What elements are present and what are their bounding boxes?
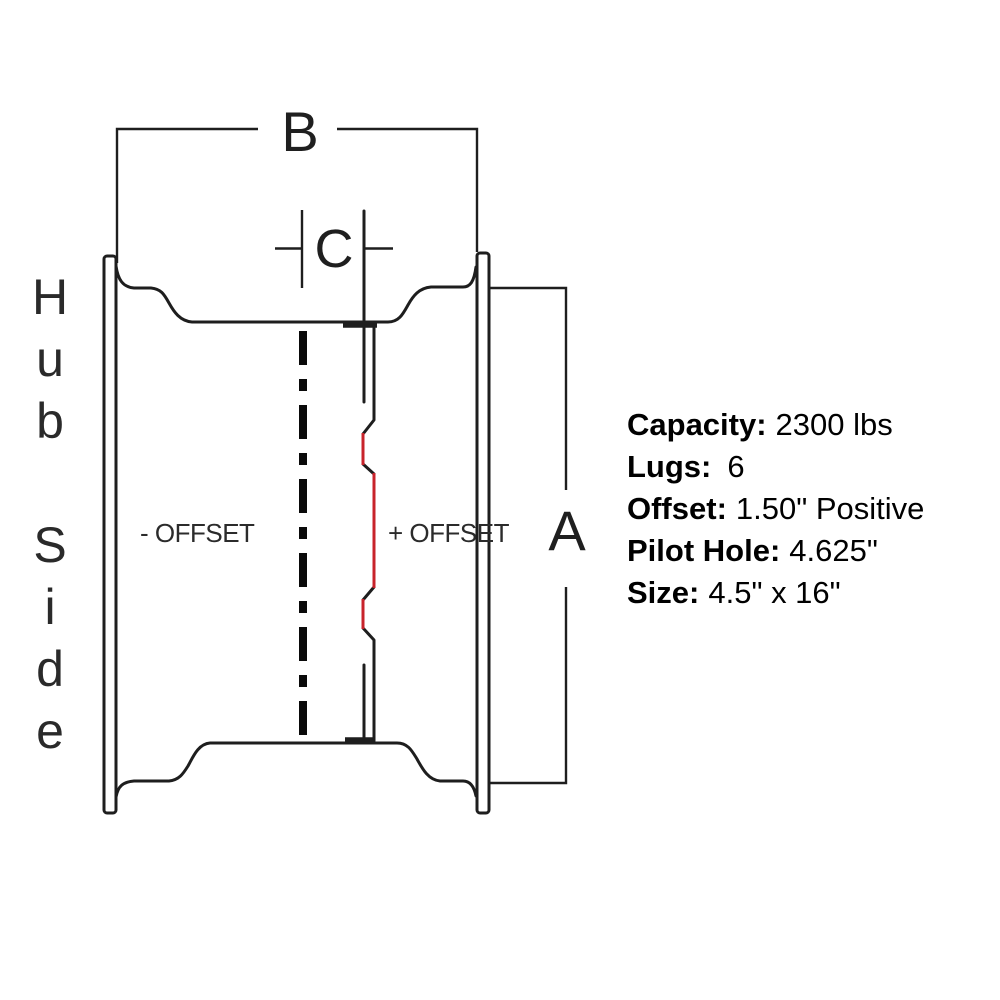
spec-value-size: 4.5" x 16"	[708, 575, 840, 610]
rim-top-inner-profile	[116, 266, 476, 322]
dim-b-label: B	[281, 100, 318, 163]
wheel-diagram-canvas: B C A Hub Side - OFFSET + OFFSET Capacit…	[0, 0, 1000, 1000]
spec-label-size: Size:	[627, 575, 699, 610]
hub-side-letter	[24, 452, 76, 514]
spec-label-lugs: Lugs:	[627, 449, 711, 484]
positive-offset-label: + OFFSET	[388, 518, 509, 549]
spec-row-offset: Offset:1.50" Positive	[627, 488, 924, 530]
hub-side-letter: i	[24, 576, 76, 638]
hub-side-letter: S	[24, 514, 76, 576]
rim-bottom-inner-profile	[116, 743, 476, 797]
spec-list: Capacity:2300 lbs Lugs:6 Offset:1.50" Po…	[627, 404, 924, 614]
hub-side-letter: H	[24, 266, 76, 328]
dim-c-label: C	[315, 219, 354, 279]
hub-side-letter: u	[24, 328, 76, 390]
hub-side-letter: e	[24, 700, 76, 762]
spec-row-size: Size:4.5" x 16"	[627, 572, 924, 614]
negative-offset-label: - OFFSET	[140, 518, 254, 549]
spec-row-capacity: Capacity:2300 lbs	[627, 404, 924, 446]
spec-value-offset: 1.50" Positive	[736, 491, 925, 526]
hub-side-letter: d	[24, 638, 76, 700]
spec-row-pilot-hole: Pilot Hole:4.625"	[627, 530, 924, 572]
hub-side-letter: b	[24, 390, 76, 452]
spec-value-lugs: 6	[727, 449, 744, 484]
spec-value-capacity: 2300 lbs	[776, 407, 893, 442]
left-flange	[104, 256, 116, 813]
spec-label-offset: Offset:	[627, 491, 727, 526]
spec-row-lugs: Lugs:6	[627, 446, 924, 488]
spec-label-pilot-hole: Pilot Hole:	[627, 533, 780, 568]
spec-label-capacity: Capacity:	[627, 407, 767, 442]
dim-a-label: A	[548, 499, 586, 562]
spec-value-pilot-hole: 4.625"	[789, 533, 878, 568]
hub-side-label: Hub Side	[24, 266, 76, 762]
